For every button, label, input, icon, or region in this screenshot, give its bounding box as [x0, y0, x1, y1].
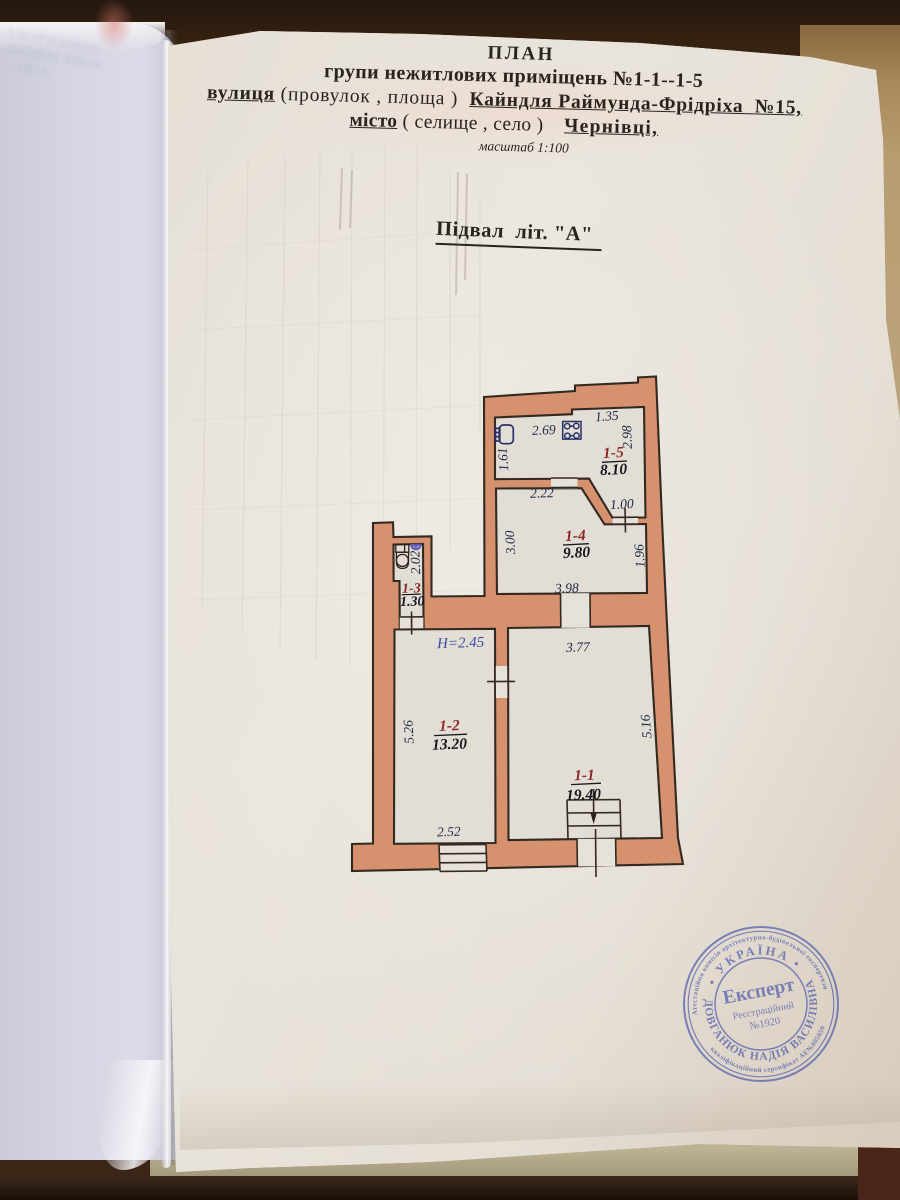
svg-text:1-2: 1-2: [439, 717, 460, 735]
svg-text:9.80: 9.80: [563, 544, 591, 562]
svg-text:1-4: 1-4: [565, 527, 587, 545]
svg-text:2.52: 2.52: [437, 824, 461, 840]
svg-text:3.00: 3.00: [502, 530, 518, 556]
svg-text:1.00: 1.00: [610, 496, 635, 512]
svg-text:2.02: 2.02: [407, 550, 423, 574]
svg-text:3.98: 3.98: [554, 580, 579, 596]
svg-text:1.61: 1.61: [495, 447, 512, 472]
svg-text:2.22: 2.22: [530, 485, 554, 501]
svg-text:5.26: 5.26: [400, 720, 416, 745]
svg-text:H=2.45: H=2.45: [436, 635, 485, 653]
svg-text:2.69: 2.69: [532, 422, 556, 438]
svg-text:13.20: 13.20: [432, 735, 468, 753]
svg-text:1.30: 1.30: [400, 594, 425, 610]
svg-text:1-5: 1-5: [603, 444, 625, 462]
svg-text:1-1: 1-1: [574, 767, 595, 785]
svg-text:3.77: 3.77: [565, 639, 591, 655]
svg-text:1.96: 1.96: [631, 543, 648, 568]
svg-text:19.40: 19.40: [566, 786, 602, 804]
svg-text:8.10: 8.10: [600, 461, 628, 479]
svg-text:5.16: 5.16: [637, 714, 654, 739]
svg-text:1.35: 1.35: [595, 408, 620, 425]
